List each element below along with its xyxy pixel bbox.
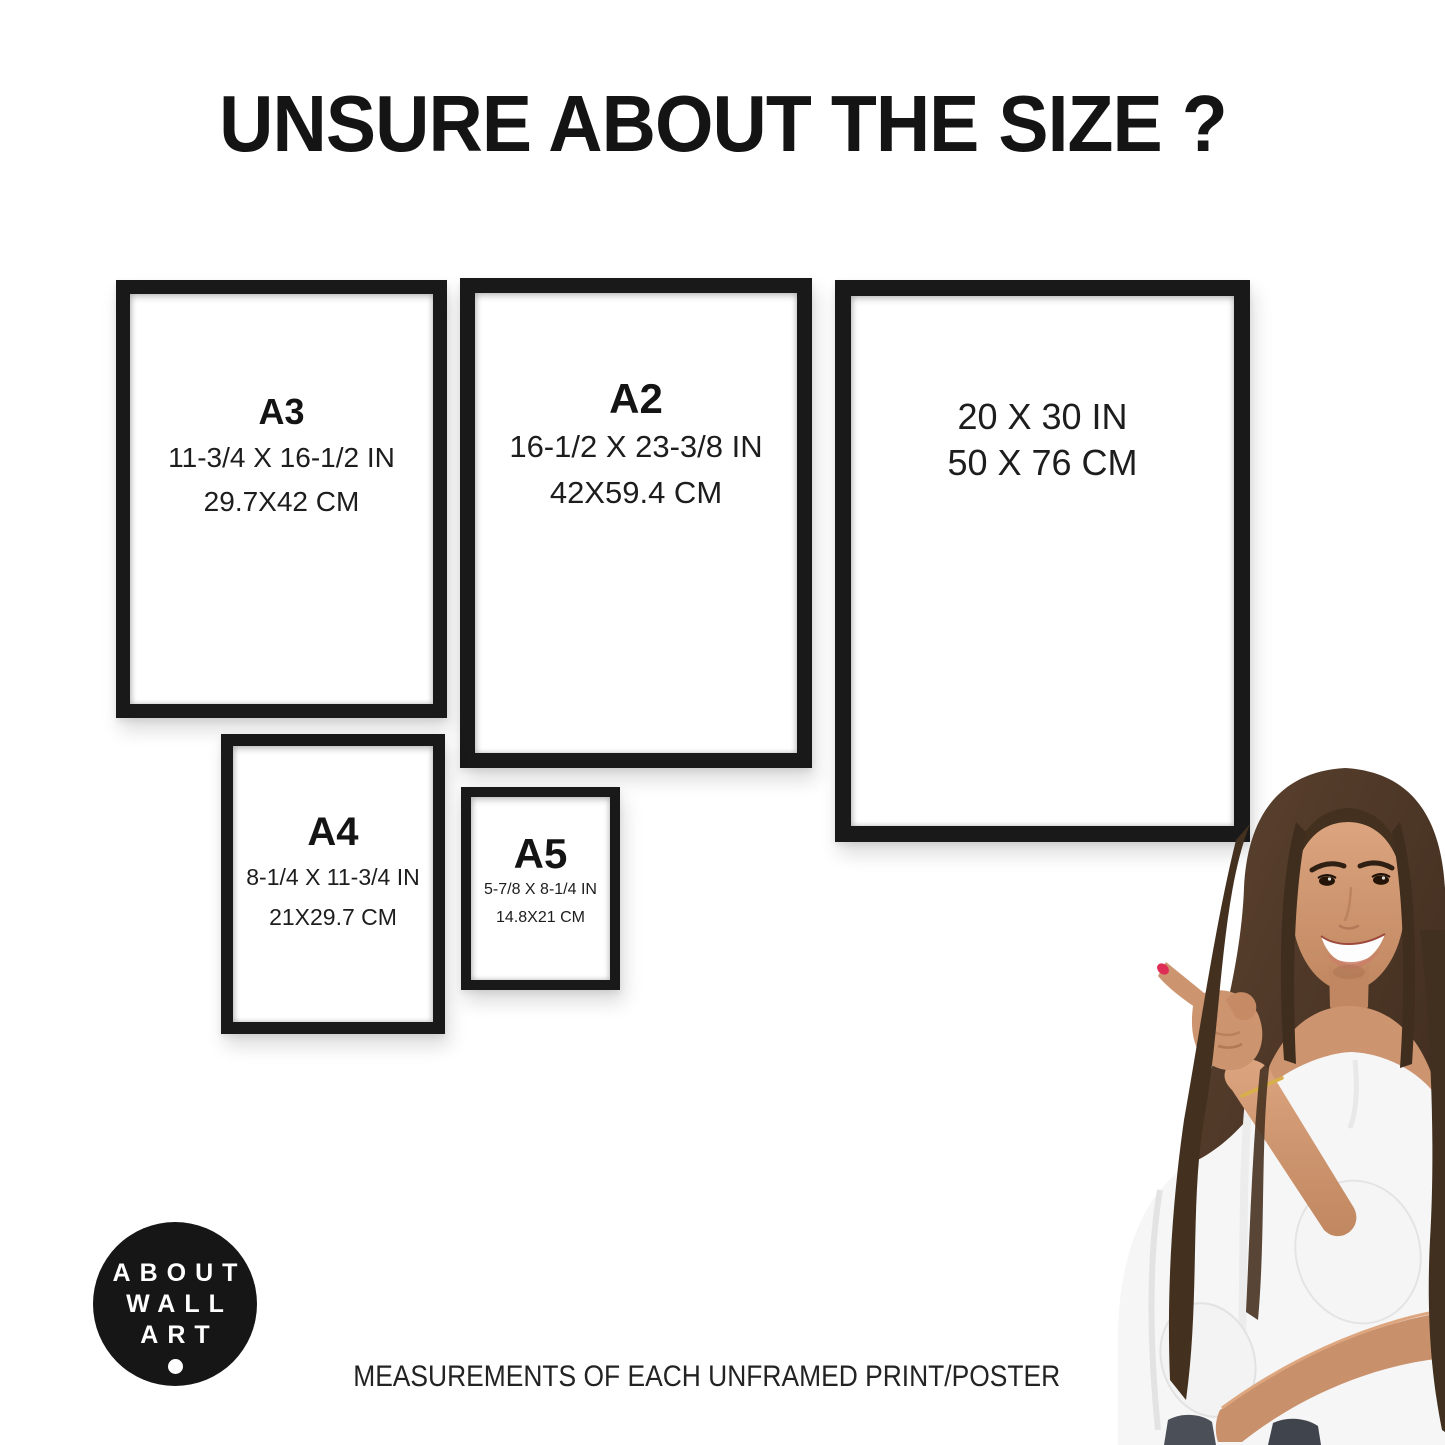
woman-photo xyxy=(1100,760,1445,1445)
size-guide-poster: UNSURE ABOUT THE SIZE ? A3 11-3/4 X 16-1… xyxy=(0,0,1445,1445)
size-cm: 21X29.7 CM xyxy=(269,904,397,931)
eye-glint xyxy=(1328,877,1331,880)
size-cm: 42X59.4 CM xyxy=(550,475,722,511)
size-cm: 14.8X21 CM xyxy=(496,909,585,927)
frame-a2-mat: A2 16-1/2 X 23-3/8 IN 42X59.4 CM xyxy=(475,293,797,753)
eye-glint xyxy=(1382,876,1385,879)
page-title: UNSURE ABOUT THE SIZE ? xyxy=(0,84,1445,164)
size-inches: 8-1/4 X 11-3/4 IN xyxy=(246,864,419,891)
size-label: A3 xyxy=(258,390,304,434)
logo-dot xyxy=(168,1359,183,1374)
frame-a4: A4 8-1/4 X 11-3/4 IN 21X29.7 CM xyxy=(221,734,445,1034)
size-cm: 50 X 76 CM xyxy=(947,442,1137,484)
brand-logo-line2: WALL xyxy=(117,1289,233,1320)
size-inches: 20 X 30 IN xyxy=(957,396,1127,438)
frame-a2: A2 16-1/2 X 23-3/8 IN 42X59.4 CM xyxy=(460,278,812,768)
caption-text: MEASUREMENTS OF EACH UNFRAMED PRINT/POST… xyxy=(353,1360,1060,1394)
size-label: A5 xyxy=(514,831,568,877)
size-inches: 16-1/2 X 23-3/8 IN xyxy=(509,429,762,465)
caption: MEASUREMENTS OF EACH UNFRAMED PRINT/POST… xyxy=(305,1360,1005,1394)
right-eye xyxy=(1373,875,1389,885)
frame-a3-mat: A3 11-3/4 X 16-1/2 IN 29.7X42 CM xyxy=(130,294,433,704)
brand-logo-line1: ABOUT xyxy=(104,1258,247,1289)
size-inches: 11-3/4 X 16-1/2 IN xyxy=(168,442,395,474)
brand-logo: ABOUT WALL ART xyxy=(93,1222,257,1386)
frame-a5-mat: A5 5-7/8 X 8-1/4 IN 14.8X21 CM xyxy=(471,797,610,980)
brand-logo-line3: ART xyxy=(131,1320,218,1351)
size-label: A4 xyxy=(307,808,358,856)
page-title-text: UNSURE ABOUT THE SIZE ? xyxy=(219,84,1227,164)
chin-shadow xyxy=(1333,965,1365,979)
frame-20x30-mat: 20 X 30 IN 50 X 76 CM xyxy=(851,296,1234,826)
size-cm: 29.7X42 CM xyxy=(204,486,360,518)
frame-a5: A5 5-7/8 X 8-1/4 IN 14.8X21 CM xyxy=(461,787,620,990)
left-eye xyxy=(1319,876,1335,886)
frame-a4-mat: A4 8-1/4 X 11-3/4 IN 21X29.7 CM xyxy=(233,746,433,1022)
frame-a3: A3 11-3/4 X 16-1/2 IN 29.7X42 CM xyxy=(116,280,447,718)
frame-20x30: 20 X 30 IN 50 X 76 CM xyxy=(835,280,1250,842)
size-label: A2 xyxy=(609,373,663,425)
size-inches: 5-7/8 X 8-1/4 IN xyxy=(484,881,597,899)
